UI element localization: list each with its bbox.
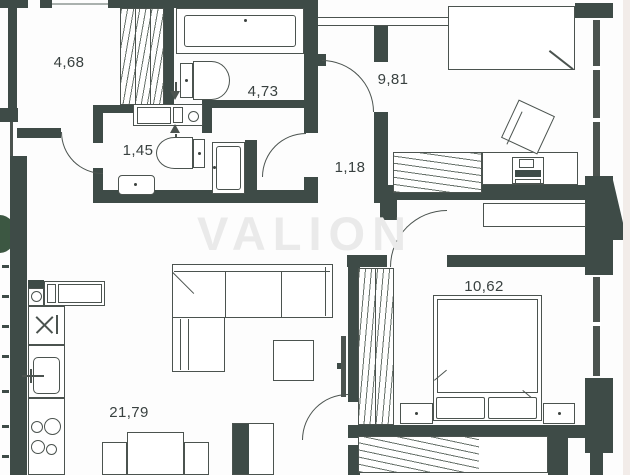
wall-right-bottom — [585, 378, 613, 453]
toilet-bowl — [156, 137, 193, 169]
wardrobe — [393, 152, 482, 193]
wall-storage-bottom — [17, 128, 61, 138]
wall-left-lower — [10, 156, 27, 475]
coffee-table — [273, 340, 314, 381]
sofa-armrest-line — [325, 267, 326, 316]
tv — [341, 336, 346, 397]
double-bed-blanket — [437, 299, 538, 393]
burner — [46, 444, 57, 455]
wardrobe-divider — [150, 9, 151, 104]
sofa-back-line — [180, 319, 181, 370]
wardrobe — [120, 8, 164, 105]
wall-top-stub — [40, 0, 52, 8]
bathtub-inner — [184, 15, 296, 47]
faucet — [22, 375, 44, 377]
wall-tick — [2, 455, 9, 458]
closet-hatch — [359, 437, 479, 472]
dining-table — [127, 432, 184, 475]
tv-mount — [337, 363, 341, 369]
bathtub-drain — [244, 19, 247, 22]
room-area-label-bedroom-small: 9,81 — [370, 71, 416, 88]
wall-left-bump — [0, 108, 18, 122]
nightstand-knob — [558, 412, 561, 415]
door-arc-bedroom-small — [322, 60, 374, 112]
room-area-label-kitchen-living: 21,79 — [103, 404, 155, 421]
wall-tick — [2, 390, 9, 393]
toilet-bowl — [193, 61, 230, 100]
burner — [31, 421, 43, 433]
window-gap — [592, 118, 601, 122]
room-area-label-storage: 4,68 — [46, 54, 92, 71]
counter-top — [58, 284, 102, 303]
burner — [31, 440, 45, 454]
shower-cabin-inner — [216, 146, 241, 190]
room-area-label-wc: 1,45 — [115, 142, 161, 159]
window-bedroom-small — [593, 20, 600, 176]
wall-bedroom-main-top-right — [447, 255, 612, 267]
window-left — [10, 122, 13, 156]
wall-tick — [2, 325, 9, 328]
nightstand-knob — [415, 412, 418, 415]
paper-edge — [623, 0, 630, 475]
floor-plan: 4,68 4,73 1,45 1,18 9,81 10,62 21,79 VAL… — [0, 0, 630, 475]
dining-chair — [102, 442, 127, 475]
printer-bar — [515, 170, 541, 177]
window-top-left — [52, 3, 108, 5]
faucet — [30, 369, 32, 383]
kitchen-knob — [31, 291, 42, 302]
toilet-dot — [198, 152, 201, 155]
desk-chair — [501, 100, 555, 155]
window-bedroom-main — [593, 277, 600, 376]
wall-tick — [2, 425, 9, 428]
washing-machine — [137, 107, 171, 124]
toilet-dot — [185, 79, 188, 82]
dining-chair — [184, 442, 209, 475]
wall-right-bottom-stub — [590, 450, 603, 475]
pillow — [436, 397, 485, 419]
door-arc-storage — [61, 132, 103, 174]
basin — [188, 111, 199, 122]
door-swing-arrow-icon — [170, 124, 180, 133]
window-gap — [592, 322, 601, 326]
partition-ledge — [318, 17, 448, 26]
mini-basin-drain — [134, 183, 137, 186]
sofa-back-line — [188, 319, 189, 370]
kitchen-counter-edge — [28, 280, 44, 288]
printer-top — [519, 159, 534, 168]
door-swing-arrow-icon — [170, 91, 180, 100]
wardrobe-divider — [375, 269, 376, 424]
room-area-label-hallway: 1,18 — [327, 159, 373, 176]
stove-counter — [28, 398, 65, 475]
door-arc-closet — [302, 394, 348, 440]
wall-bathroom-bottom — [210, 100, 304, 108]
shower-door-dot — [213, 166, 216, 169]
window-gap — [592, 66, 601, 70]
burner — [44, 418, 61, 435]
tv-cabinet-dark — [233, 424, 249, 474]
wall-tick — [2, 265, 9, 268]
wall-tick — [2, 295, 9, 298]
pillow — [488, 397, 537, 419]
dishwasher-bar — [56, 315, 58, 334]
sofa-cushion-line — [281, 272, 282, 317]
door-swing-arrow-stem — [175, 82, 177, 91]
watermark: VALION — [145, 206, 465, 261]
sofa-cushion-line — [225, 272, 226, 317]
wall-closet-block — [548, 425, 568, 475]
printer-tray — [515, 179, 541, 184]
wall-bathroom-right-upper — [304, 8, 318, 133]
room-area-label-bedroom-main: 10,62 — [458, 278, 510, 295]
corridor-wardrobe — [483, 203, 586, 227]
counter-unit — [173, 107, 183, 123]
corner-sofa — [172, 264, 333, 318]
wardrobe-divider — [135, 9, 136, 104]
door-arc-bathroom — [262, 133, 306, 177]
wall-tick — [2, 355, 9, 358]
wall-hall-right-upper — [374, 22, 388, 62]
room-area-label-bathroom: 4,73 — [240, 83, 286, 100]
wall-top-right-corner — [575, 3, 613, 18]
sofa-back-line — [174, 271, 330, 272]
wardrobe — [358, 268, 394, 425]
wall-left-upper — [8, 0, 17, 112]
single-bed — [448, 6, 575, 70]
wall-top-main — [108, 0, 318, 8]
fridge — [47, 284, 56, 303]
